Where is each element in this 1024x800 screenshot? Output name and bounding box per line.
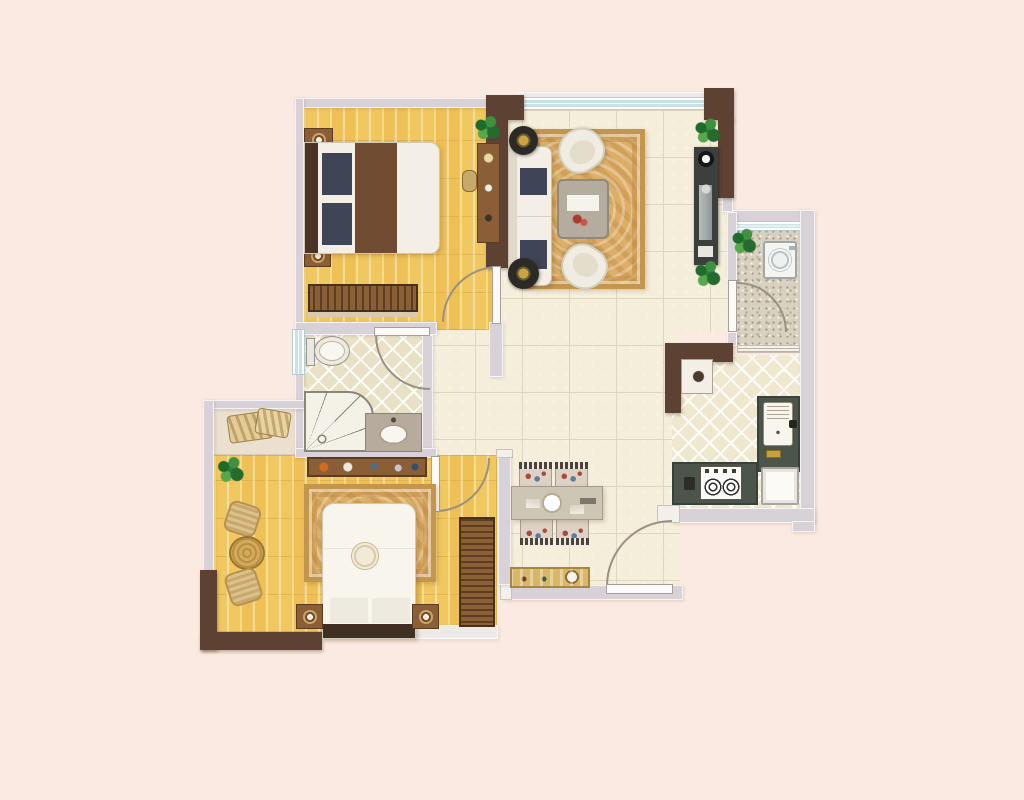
gas-stove-icon (700, 466, 742, 500)
dining-chair-icon (519, 462, 552, 488)
toilet-icon (314, 336, 350, 366)
wall-bay-top (203, 400, 307, 409)
side-table-icon (509, 126, 538, 155)
wall-brown-bedroom2-h (200, 632, 322, 650)
jamb-bedroom2-right-top (496, 449, 513, 458)
plant-icon (692, 260, 722, 290)
wall-brown-kitchen-v (665, 360, 681, 413)
nightstand-icon (296, 604, 323, 629)
nightstand-icon (412, 604, 439, 629)
wall-kitchen-bottom-step (792, 521, 815, 532)
bathroom-door-leaf (374, 327, 430, 336)
round-table-icon (229, 536, 265, 570)
shower-icon (304, 391, 374, 452)
wardrobe-shelf (308, 312, 418, 317)
bay-cushion-icon (254, 407, 292, 439)
wall-living-right-gap (722, 196, 733, 212)
sideboard-icon (510, 567, 590, 588)
living-room-top-window (518, 98, 708, 109)
bathroom-left-window (293, 330, 304, 374)
dining-chair-icon (555, 462, 588, 488)
entry-door-leaf (606, 584, 673, 594)
stool-icon (462, 170, 477, 192)
side-table-icon (508, 258, 539, 289)
double-bed-icon (322, 503, 416, 639)
plant-icon (214, 456, 246, 486)
dining-table-icon (511, 486, 603, 520)
wall-right-outer (800, 210, 815, 523)
wall-bedroom1-top (295, 98, 497, 108)
dresser-icon (307, 457, 427, 477)
tv-cabinet-icon (694, 147, 718, 265)
plant-icon (692, 118, 722, 146)
double-bed-icon (304, 142, 440, 254)
laundry-kitchen-pass-window (737, 345, 800, 353)
wall-hall-dining-stub (489, 322, 503, 377)
laundry-door-leaf (728, 280, 737, 332)
dining-chair-icon (556, 519, 589, 545)
kitchen-item-icon (684, 477, 695, 490)
kitchen-cabinet-icon (681, 359, 713, 394)
counter-label (766, 450, 781, 458)
washing-machine-icon (763, 241, 797, 279)
desk-icon (477, 143, 500, 243)
fridge-icon (761, 467, 799, 505)
floor-plan (0, 0, 1024, 800)
sink-faucet-icon (789, 420, 797, 428)
plant-icon (472, 116, 502, 142)
wardrobe-icon (308, 284, 418, 312)
dining-chair-icon (520, 519, 553, 545)
wall-bedroom2-right (498, 453, 511, 585)
plant-icon (730, 228, 757, 257)
coffee-table-icon (557, 179, 609, 239)
bedroom1-door-leaf (492, 266, 501, 324)
wardrobe-icon (459, 517, 495, 627)
wall-brown-pillar-b-top (704, 88, 734, 120)
washbasin-icon (365, 413, 422, 452)
